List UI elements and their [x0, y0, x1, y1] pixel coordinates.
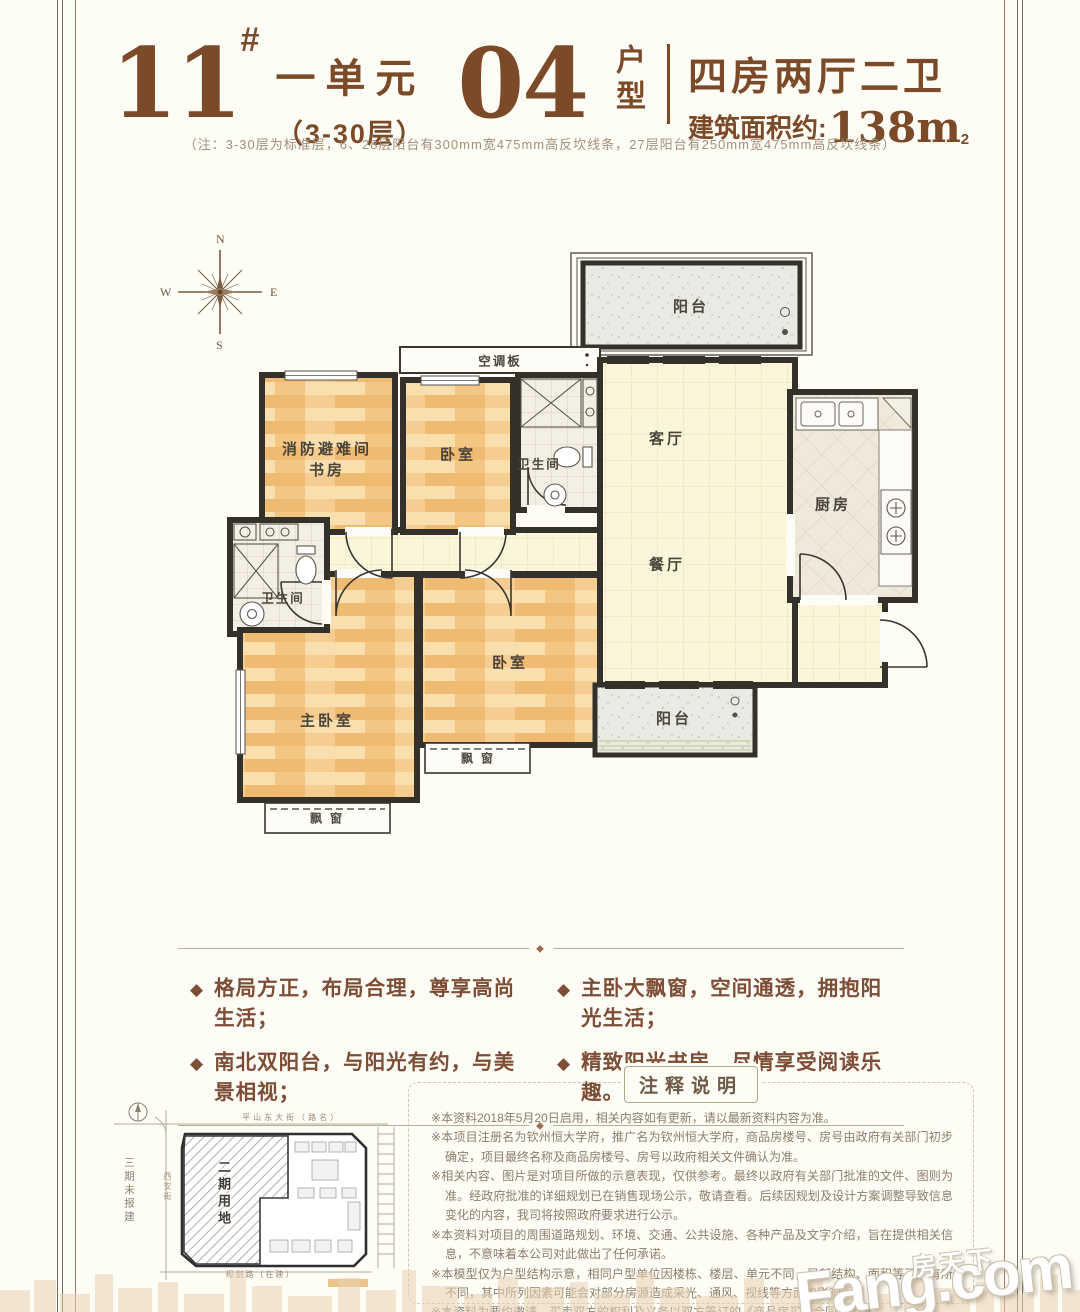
note-text: 相关内容、图片是对项目所做的示意表现，仅供参考。最终以政府有关部门批准的文件、图… — [441, 1169, 953, 1222]
room-label-bedroom-top: 卧室 — [440, 444, 476, 465]
note-text: 本项目注册名为钦州恒大学府，推广名为钦州恒大学府，商品房楼号、房号由政府有关部门… — [441, 1130, 953, 1163]
room-label-master: 主卧室 — [300, 710, 354, 731]
room-label-living: 客厅 — [649, 428, 685, 449]
room-label-balcony-top: 阳台 — [673, 296, 709, 317]
site-plan: 平山东大街（路名） 规划路（在建） 三期未报建 西安街 二期用地 — [100, 1072, 400, 1287]
room-label-bay-master: 飘窗 — [310, 810, 350, 827]
layout-block: 四房两厅二卫 建筑面积约: 138m 2 — [688, 46, 969, 145]
disclaimer-item: ※本资料2018年5月20日启用，相关内容如有更新，请以最新资料内容为准。 — [431, 1109, 953, 1128]
refuge-line2: 书房 — [309, 460, 345, 481]
room-label-refuge-study: 消防避难间 书房 — [282, 439, 372, 481]
feature-item: ◆主卧大飘窗，空间通透，拥抱阳光生活； — [557, 971, 898, 1031]
feature-text: 主卧大飘窗，空间通透，拥抱阳光生活； — [581, 971, 898, 1031]
divider-top: ◆ — [178, 948, 904, 949]
unit-number: 04 — [457, 38, 587, 130]
diamond-bullet-icon: ◆ — [557, 980, 571, 1000]
building-number-value: 11 — [111, 27, 241, 140]
layout-description: 四房两厅二卫 — [688, 46, 969, 102]
room-label-kitchen: 厨房 — [815, 494, 851, 515]
floorplan: 阳台 空调板 消防避难间 书房 卧室 卫生间 客厅 餐厅 厨房 卫生间 主卧室 … — [215, 252, 935, 852]
note-marker: ※ — [431, 1111, 441, 1125]
road-name-top: 平山东大街（路名） — [242, 1112, 341, 1123]
feature-item: ◆格局方正，布局合理，尊享高尚生活； — [190, 971, 531, 1031]
frame-line — [1004, 0, 1005, 1312]
frame-line — [62, 0, 63, 1312]
note-marker: ※ — [431, 1169, 441, 1183]
room-label-bath-left: 卫生间 — [261, 588, 305, 607]
room-label-dining: 餐厅 — [649, 554, 685, 575]
hash-mark: # — [240, 21, 257, 59]
floorplan-drawing — [215, 252, 935, 852]
compass-west-label: W — [160, 285, 171, 300]
note-text: 本资料2018年5月20日启用，相关内容如有更新，请以最新资料内容为准。 — [441, 1111, 836, 1125]
disclaimer-item: ※本项目注册名为钦州恒大学府，推广名为钦州恒大学府，商品房楼号、房号由政府有关部… — [431, 1128, 953, 1167]
note-marker: ※ — [431, 1228, 441, 1242]
refuge-line1: 消防避难间 — [282, 439, 372, 460]
frame-line — [57, 0, 58, 1312]
frame-line — [1022, 0, 1023, 1312]
building-number: 11# — [111, 38, 258, 130]
site-plan-drawing — [100, 1072, 400, 1287]
diamond-ornament-icon: ◆ — [529, 943, 553, 954]
frame-line — [75, 0, 76, 1312]
diamond-bullet-icon: ◆ — [557, 1054, 571, 1074]
header-divider — [667, 44, 670, 124]
room-label-bay-bedroom: 飘窗 — [461, 750, 501, 767]
unit-name: 一单元 — [275, 46, 425, 104]
room-label-ac-board: 空调板 — [478, 351, 522, 370]
diamond-bullet-icon: ◆ — [190, 980, 204, 1000]
phase2-label: 二期用地 — [214, 1160, 233, 1228]
phase3-label: 三期未报建 — [122, 1157, 137, 1225]
unit-type-label: 户型 — [605, 44, 649, 116]
disclaimer-title: 注释说明 — [624, 1066, 758, 1103]
room-label-bedroom-bottom: 卧室 — [492, 652, 528, 673]
note-marker: ※ — [431, 1130, 441, 1144]
room-label-balcony-bottom: 阳台 — [656, 708, 692, 729]
disclaimer-item: ※相关内容、图片是对项目所做的示意表现，仅供参考。最终以政府有关部门批准的文件、… — [431, 1167, 953, 1225]
feature-text: 格局方正，布局合理，尊享高尚生活； — [214, 971, 531, 1031]
road-name-left: 西安街 — [162, 1172, 173, 1202]
standard-floor-note: （注：3-30层为标准层，6、28层阳台有300mm宽475mm高反坎线条，27… — [0, 134, 1080, 153]
room-label-bath-top: 卫生间 — [517, 454, 561, 473]
frame-line — [1017, 0, 1018, 1312]
floorplan-poster: 11# 一单元 （3-30层） 04 户型 四房两厅二卫 建筑面积约: 138m… — [0, 0, 1080, 1312]
diamond-bullet-icon: ◆ — [190, 1054, 204, 1074]
compass-north-label: N — [216, 232, 225, 247]
